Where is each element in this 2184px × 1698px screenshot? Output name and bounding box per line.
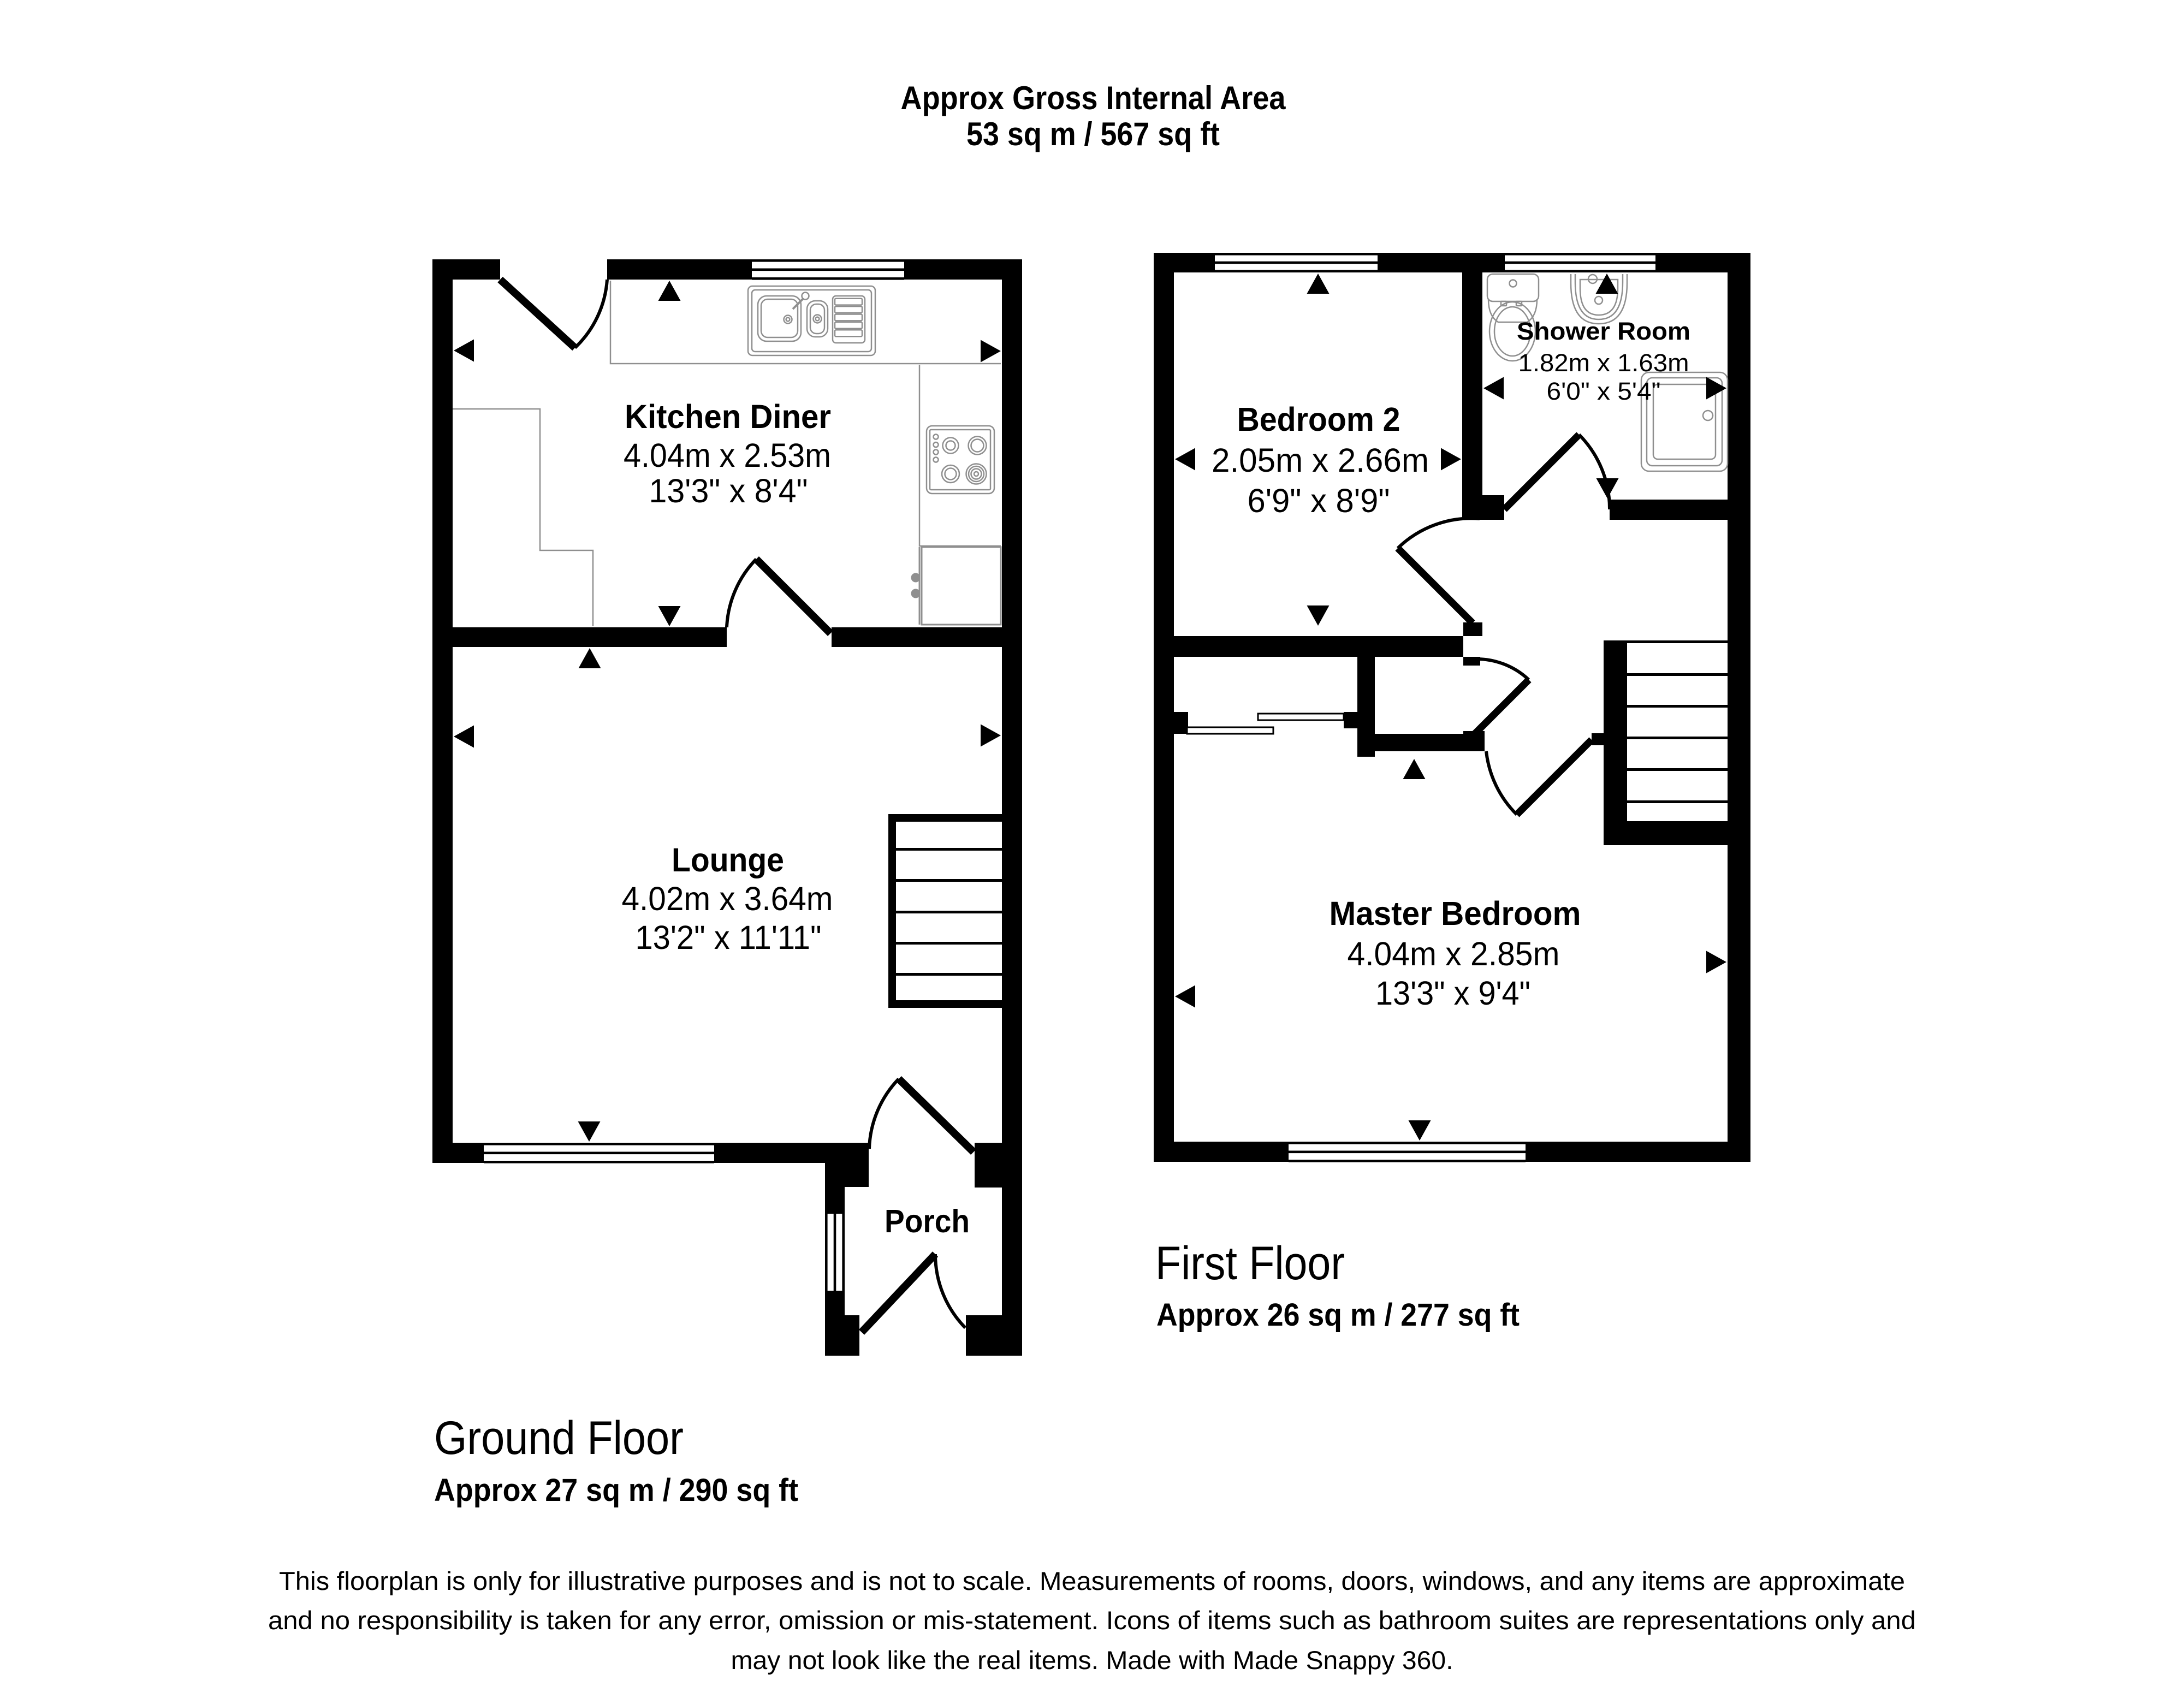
- svg-text:4.04m x 2.85m: 4.04m x 2.85m: [1348, 935, 1560, 972]
- svg-text:Bedroom 2: Bedroom 2: [1237, 401, 1400, 438]
- svg-text:4.04m x 2.53m: 4.04m x 2.53m: [624, 437, 831, 474]
- svg-text:This floorplan is only for ill: This floorplan is only for illustrative …: [279, 1566, 1905, 1595]
- svg-text:2.05m x 2.66m: 2.05m x 2.66m: [1212, 442, 1429, 479]
- svg-text:may not look like the real ite: may not look like the real items. Made w…: [731, 1646, 1453, 1675]
- svg-text:Ground Floor: Ground Floor: [434, 1412, 684, 1464]
- svg-text:Master Bedroom: Master Bedroom: [1330, 895, 1581, 932]
- svg-text:Approx Gross Internal Area: Approx Gross Internal Area: [901, 80, 1286, 116]
- svg-text:Approx 27 sq m / 290 sq ft: Approx 27 sq m / 290 sq ft: [434, 1473, 798, 1508]
- svg-text:13'2" x 11'11": 13'2" x 11'11": [636, 919, 822, 956]
- svg-text:13'3" x 8'4": 13'3" x 8'4": [649, 472, 808, 509]
- svg-text:6'0" x 5'4": 6'0" x 5'4": [1547, 377, 1661, 405]
- svg-text:and no responsibility is taken: and no responsibility is taken for any e…: [268, 1606, 1916, 1635]
- svg-text:6'9" x 8'9": 6'9" x 8'9": [1248, 482, 1390, 519]
- svg-text:53 sq m / 567 sq ft: 53 sq m / 567 sq ft: [966, 116, 1220, 152]
- svg-text:Shower Room: Shower Room: [1517, 317, 1690, 345]
- svg-text:13'3" x 9'4": 13'3" x 9'4": [1375, 975, 1530, 1012]
- svg-text:Approx 26 sq m / 277 sq ft: Approx 26 sq m / 277 sq ft: [1156, 1297, 1520, 1333]
- svg-text:Kitchen Diner: Kitchen Diner: [625, 398, 831, 435]
- svg-text:First Floor: First Floor: [1155, 1237, 1345, 1290]
- svg-text:Porch: Porch: [885, 1203, 970, 1239]
- svg-text:1.82m x 1.63m: 1.82m x 1.63m: [1518, 349, 1689, 377]
- svg-text:Lounge: Lounge: [672, 841, 784, 878]
- svg-text:4.02m x 3.64m: 4.02m x 3.64m: [622, 880, 833, 917]
